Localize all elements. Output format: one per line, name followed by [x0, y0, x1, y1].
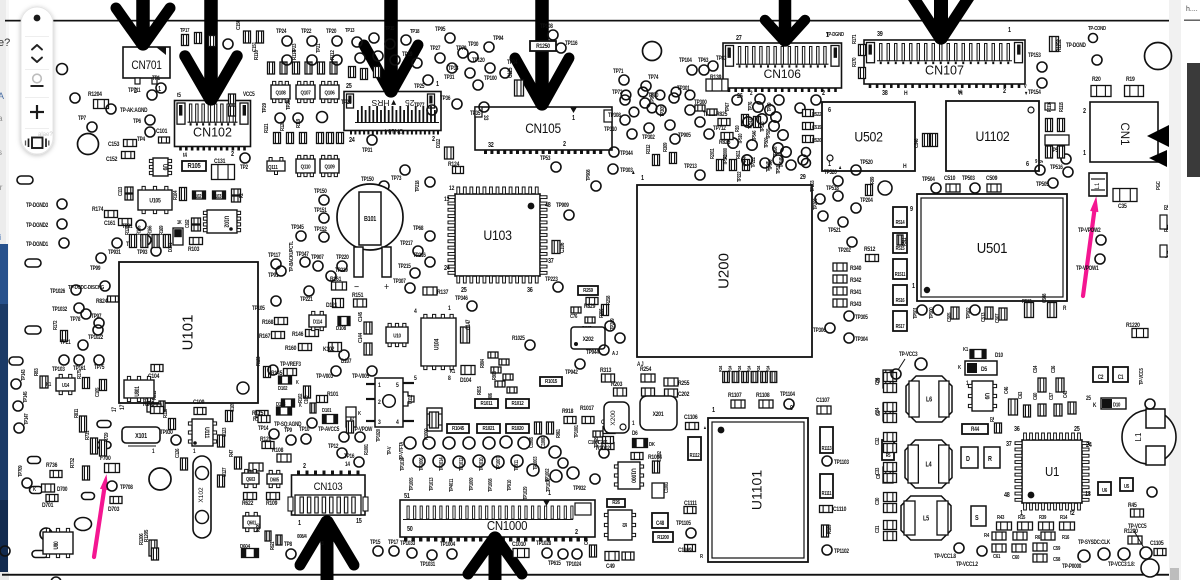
svg-text:C145: C145 — [358, 312, 365, 322]
svg-text:TP71: TP71 — [613, 69, 623, 76]
svg-text:H: H — [903, 164, 906, 171]
svg-text:R172: R172 — [53, 320, 60, 330]
svg-text:R815: R815 — [477, 386, 483, 395]
svg-text:K: K — [1093, 403, 1096, 410]
svg-text:TP307: TP307 — [393, 279, 406, 286]
svg-text:TP1028: TP1028 — [536, 541, 551, 548]
svg-text:TP4011: TP4011 — [449, 478, 456, 492]
svg-text:TP598: TP598 — [773, 146, 779, 157]
svg-text:TP306: TP306 — [813, 328, 826, 335]
svg-text:C36: C36 — [875, 377, 882, 385]
svg-text:TP-DGND: TP-DGND — [826, 32, 844, 39]
svg-text:TP63: TP63 — [698, 58, 708, 65]
svg-text:TP310: TP310 — [604, 127, 617, 134]
svg-text:R99: R99 — [870, 176, 877, 184]
svg-text:TP31: TP31 — [362, 148, 372, 155]
svg-text:TP223: TP223 — [545, 277, 558, 284]
svg-text:U9: U9 — [161, 164, 169, 171]
svg-text:U801: U801 — [135, 386, 142, 396]
svg-text:R254: R254 — [640, 367, 652, 374]
svg-text:TP145: TP145 — [23, 391, 30, 403]
svg-text:TP615: TP615 — [548, 561, 561, 568]
svg-text:R161: R161 — [330, 277, 342, 284]
svg-text:TP100: TP100 — [484, 76, 497, 83]
svg-text:D101: D101 — [322, 408, 332, 415]
svg-text:U80: U80 — [54, 541, 61, 549]
svg-text:C1110: C1110 — [833, 507, 846, 514]
svg-text:H: H — [904, 91, 907, 98]
svg-text:C1003: C1003 — [664, 482, 670, 493]
svg-text:U501: U501 — [977, 239, 1008, 256]
svg-text:C1111: C1111 — [684, 501, 698, 508]
svg-text:R1020: R1020 — [511, 426, 523, 433]
svg-text:1: 1 — [193, 449, 196, 456]
svg-text:U101: U101 — [179, 315, 196, 351]
svg-text:TP905: TP905 — [678, 133, 691, 140]
svg-text:R124: R124 — [448, 162, 460, 169]
svg-text:TP67: TP67 — [725, 102, 732, 112]
svg-text:R10: R10 — [735, 125, 741, 132]
svg-text:CN1000: CN1000 — [487, 518, 528, 533]
svg-text:C106: C106 — [560, 243, 567, 253]
svg-text:R20: R20 — [1092, 77, 1101, 84]
svg-text:C61: C61 — [993, 554, 1001, 561]
svg-text:TP302: TP302 — [642, 135, 655, 142]
svg-text:C35: C35 — [1118, 204, 1127, 211]
svg-text:TP103: TP103 — [52, 367, 65, 374]
svg-text:TP907: TP907 — [311, 255, 324, 262]
svg-text:TP153: TP153 — [1028, 53, 1041, 60]
svg-text:R24: R24 — [765, 365, 771, 372]
svg-text:D101: D101 — [168, 242, 175, 252]
svg-text:TP26: TP26 — [341, 100, 351, 107]
svg-text:1: 1 — [966, 381, 969, 388]
svg-text:R174: R174 — [92, 207, 104, 214]
svg-text:TP-VCC1.2: TP-VCC1.2 — [956, 562, 978, 569]
svg-text:R: R — [1063, 306, 1066, 313]
svg-text:t2: t2 — [1070, 509, 1075, 517]
svg-text:TP1022: TP1022 — [88, 335, 103, 342]
svg-text:TP304: TP304 — [855, 337, 868, 344]
svg-text:R1511: R1511 — [895, 272, 906, 278]
svg-text:R516: R516 — [896, 298, 905, 304]
svg-text:R620: R620 — [256, 523, 262, 532]
svg-text:TP1001: TP1001 — [574, 425, 580, 438]
svg-text:14: 14 — [345, 462, 350, 469]
svg-text:36: 36 — [527, 286, 533, 294]
svg-text:TP6: TP6 — [133, 119, 141, 126]
svg-text:TP-SQ:AGND: TP-SQ:AGND — [274, 422, 302, 429]
svg-text:R123: R123 — [256, 356, 263, 366]
svg-text:TP1032: TP1032 — [52, 307, 67, 314]
svg-text:TP501: TP501 — [913, 307, 920, 319]
svg-text:32: 32 — [488, 141, 494, 149]
svg-text:TP68: TP68 — [413, 226, 423, 233]
svg-text:27: 27 — [736, 34, 742, 42]
svg-text:TP346: TP346 — [455, 296, 468, 303]
svg-text:TP2: TP2 — [240, 165, 248, 172]
svg-text:R2: R2 — [1164, 205, 1171, 210]
svg-text:R2: R2 — [990, 417, 997, 422]
svg-text:C150: C150 — [236, 20, 243, 30]
svg-text:R1220: R1220 — [1126, 323, 1140, 330]
svg-text:TP217: TP217 — [400, 241, 413, 248]
svg-text:36: 36 — [1014, 425, 1020, 433]
svg-text:TP520: TP520 — [824, 170, 837, 177]
svg-text:CN106: CN106 — [764, 67, 802, 81]
svg-text:TP-VTFTA: TP-VTFTA — [399, 441, 406, 460]
svg-text:TP221: TP221 — [300, 297, 313, 304]
svg-text:17: 17 — [112, 407, 119, 412]
svg-text:R824: R824 — [96, 299, 108, 306]
svg-text:L1: L1 — [1134, 432, 1143, 441]
svg-text:R1250: R1250 — [536, 44, 550, 51]
svg-text:TP15: TP15 — [385, 26, 395, 33]
svg-text:TP213: TP213 — [684, 164, 697, 171]
svg-text:TP24: TP24 — [276, 29, 286, 36]
svg-text:C144: C144 — [358, 333, 365, 343]
svg-text:TP500: TP500 — [929, 307, 936, 319]
svg-text:D604: D604 — [240, 544, 250, 551]
svg-text:25: 25 — [346, 82, 352, 90]
svg-text:TP12: TP12 — [328, 444, 338, 451]
svg-text:R1002: R1002 — [596, 446, 610, 453]
svg-text:TP22: TP22 — [301, 29, 311, 36]
svg-text:R2: R2 — [239, 193, 245, 198]
svg-text:TP16: TP16 — [344, 454, 354, 461]
svg-text:24: 24 — [1086, 441, 1092, 449]
svg-text:U9: U9 — [983, 393, 991, 400]
svg-text:R167: R167 — [259, 334, 270, 341]
svg-text:R1107: R1107 — [728, 393, 741, 400]
svg-text:17: 17 — [120, 405, 127, 410]
svg-text:TP7: TP7 — [78, 116, 86, 123]
svg-text:TP596: TP596 — [768, 159, 774, 170]
svg-text:TP99: TP99 — [90, 266, 100, 273]
svg-text:TP206: TP206 — [813, 198, 820, 210]
svg-text:U6: U6 — [1102, 488, 1107, 495]
svg-text:TP512: TP512 — [748, 118, 754, 129]
svg-text:TP104: TP104 — [679, 58, 692, 65]
svg-text:C34: C34 — [875, 407, 882, 415]
svg-text:TP220: TP220 — [336, 255, 349, 262]
svg-text:PGC: PGC — [1156, 181, 1163, 190]
svg-text:R24: R24 — [727, 365, 733, 372]
svg-text:R45: R45 — [1128, 503, 1137, 510]
svg-text:R1204: R1204 — [88, 92, 103, 99]
svg-text:TP-V: TP-V — [387, 446, 393, 455]
svg-text:C151: C151 — [252, 42, 259, 52]
svg-text:TP15: TP15 — [370, 540, 380, 547]
svg-text:TP222: TP222 — [737, 171, 743, 182]
svg-text:TP-VPOW2: TP-VPOW2 — [1078, 228, 1101, 235]
svg-text:D102: D102 — [278, 386, 288, 393]
svg-text:C31: C31 — [875, 525, 882, 533]
svg-text:C202: C202 — [678, 392, 689, 399]
svg-text:TP21: TP21 — [316, 43, 323, 53]
svg-text:TP150: TP150 — [361, 177, 374, 184]
svg-text:D701: D701 — [42, 503, 54, 510]
svg-text:TP27: TP27 — [430, 46, 440, 53]
svg-text:U105: U105 — [149, 198, 161, 205]
svg-text:TP215: TP215 — [398, 264, 411, 271]
svg-text:U1101: U1101 — [749, 470, 765, 510]
svg-text:C1010: C1010 — [512, 542, 526, 549]
svg-text:TP-AK:AGND: TP-AK:AGND — [120, 108, 148, 115]
svg-text:1: 1 — [632, 421, 635, 428]
svg-text:R139: R139 — [710, 75, 722, 82]
svg-text:C510: C510 — [944, 176, 955, 183]
svg-text:R517: R517 — [896, 324, 905, 330]
svg-text:33: 33 — [482, 115, 489, 121]
svg-text:U111: U111 — [203, 427, 211, 439]
svg-text:2: 2 — [378, 400, 381, 407]
svg-text:TP1026: TP1026 — [546, 478, 553, 492]
svg-text:C1006: C1006 — [541, 437, 547, 448]
svg-text:TP35: TP35 — [470, 111, 480, 118]
svg-text:R83: R83 — [34, 368, 41, 376]
svg-text:R1015: R1015 — [545, 379, 557, 386]
svg-text:TP516: TP516 — [1050, 165, 1063, 172]
svg-text:U10: U10 — [393, 333, 401, 340]
svg-text:R312: R312 — [646, 144, 653, 154]
svg-text:R340: R340 — [850, 266, 861, 273]
svg-text:R732: R732 — [70, 458, 77, 468]
svg-text:Q603: Q603 — [246, 477, 256, 483]
svg-text:U1: U1 — [1045, 464, 1060, 479]
svg-text:D700: D700 — [57, 487, 67, 494]
svg-text:R343: R343 — [850, 302, 862, 309]
svg-text:R160: R160 — [285, 346, 296, 353]
svg-text:TP944: TP944 — [586, 350, 599, 357]
svg-text:D703: D703 — [108, 507, 120, 514]
svg-text:TP1020: TP1020 — [376, 429, 382, 442]
svg-text:C109: C109 — [230, 402, 237, 412]
svg-text:D103: D103 — [276, 402, 286, 409]
svg-text:R309: R309 — [663, 142, 670, 152]
svg-text:D605: D605 — [270, 477, 279, 483]
svg-text:R24: R24 — [756, 365, 762, 372]
svg-text:R513: R513 — [1022, 299, 1032, 306]
svg-text:D6: D6 — [632, 431, 638, 438]
svg-text:TP-COND: TP-COND — [1088, 26, 1106, 33]
svg-text:13: 13 — [1085, 490, 1091, 498]
svg-text:TP-V003: TP-V003 — [316, 374, 333, 381]
svg-text:TP1004: TP1004 — [440, 542, 455, 549]
svg-text:R169: R169 — [158, 225, 165, 235]
svg-text:TP595: TP595 — [766, 128, 772, 139]
svg-text:Q111: Q111 — [268, 165, 278, 172]
svg-text:TP-VCC1.8: TP-VCC1.8 — [934, 554, 956, 561]
svg-text:TP78: TP78 — [70, 317, 80, 324]
svg-text:TP218: TP218 — [415, 180, 422, 192]
svg-text:C49: C49 — [606, 564, 615, 571]
svg-text:C509: C509 — [986, 176, 998, 183]
svg-text:TP216: TP216 — [413, 253, 426, 260]
svg-text:D107: D107 — [341, 359, 351, 366]
svg-text:25: 25 — [1074, 425, 1080, 433]
svg-text:TP1026: TP1026 — [50, 289, 65, 296]
svg-text:1: 1 — [152, 449, 155, 456]
svg-text:R961: R961 — [556, 429, 562, 438]
svg-text:R109: R109 — [827, 524, 834, 534]
svg-text:R1012: R1012 — [511, 401, 523, 408]
svg-text:X102: X102 — [198, 487, 205, 503]
svg-text:R101: R101 — [327, 392, 339, 399]
svg-text:R44: R44 — [971, 427, 979, 434]
svg-text:R255: R255 — [678, 381, 690, 388]
svg-text:C109: C109 — [193, 400, 205, 407]
svg-text:R341: R341 — [850, 290, 862, 297]
svg-text:R175: R175 — [77, 369, 84, 379]
svg-text:TP510: TP510 — [738, 133, 744, 144]
svg-text:TP523: TP523 — [760, 121, 766, 132]
svg-text:C54: C54 — [1033, 365, 1040, 373]
svg-text:R47: R47 — [229, 449, 236, 457]
svg-text:D108: D108 — [336, 326, 346, 333]
svg-text:C546: C546 — [914, 138, 921, 148]
svg-text:R512: R512 — [864, 247, 875, 254]
svg-text:TP546: TP546 — [752, 130, 758, 141]
svg-text:R15: R15 — [1018, 515, 1026, 522]
svg-text:K102: K102 — [323, 347, 334, 354]
svg-text:TP-VCC3:1.8:: TP-VCC3:1.8: — [1108, 562, 1135, 569]
svg-text:D10: D10 — [1113, 402, 1121, 409]
svg-text:TP75: TP75 — [94, 365, 104, 372]
svg-text:C1107: C1107 — [816, 398, 829, 405]
svg-text:B101: B101 — [364, 215, 377, 223]
svg-text:TP-DGND3: TP-DGND3 — [26, 203, 48, 210]
svg-text:TP23: TP23 — [292, 43, 299, 53]
svg-text:D121: D121 — [326, 303, 338, 310]
svg-text:R203: R203 — [611, 382, 623, 389]
svg-text:C126: C126 — [175, 448, 182, 458]
svg-text:U1102: U1102 — [975, 128, 1009, 144]
svg-text:TP9: TP9 — [284, 428, 292, 435]
svg-text:TP204: TP204 — [860, 198, 873, 205]
svg-text:U5: U5 — [1124, 484, 1129, 491]
svg-text:TP1024: TP1024 — [566, 562, 581, 569]
svg-text:R1115: R1115 — [1059, 101, 1065, 112]
svg-text:R1045: R1045 — [452, 426, 464, 433]
svg-text:TP345: TP345 — [291, 225, 304, 232]
svg-text:C30: C30 — [875, 497, 882, 505]
svg-text:R1116: R1116 — [1047, 101, 1053, 112]
svg-text:TP305: TP305 — [855, 315, 868, 322]
svg-text:R: R — [988, 455, 992, 463]
svg-text:A: A — [0, 91, 4, 101]
svg-text:K1: K1 — [46, 382, 51, 389]
svg-text:R1001: R1001 — [364, 444, 370, 455]
svg-text:TP520: TP520 — [860, 160, 873, 167]
svg-text:R24: R24 — [718, 365, 724, 372]
svg-text:t3: t3 — [320, 541, 324, 548]
svg-text:R24: R24 — [746, 365, 752, 372]
svg-text:TP33: TP33 — [448, 66, 458, 73]
svg-text:TP93: TP93 — [137, 250, 147, 257]
svg-text:C46: C46 — [1004, 386, 1011, 394]
svg-text:Q107: Q107 — [300, 90, 310, 97]
svg-text:TP-VCC5: TP-VCC5 — [1128, 524, 1147, 531]
svg-text:TP308: TP308 — [608, 113, 621, 120]
svg-text:R109: R109 — [266, 501, 278, 508]
svg-text:50: 50 — [407, 525, 413, 533]
svg-text:TP-V005: TP-V005 — [352, 374, 369, 381]
svg-text:TP911: TP911 — [514, 460, 521, 471]
svg-text:R313: R313 — [600, 368, 612, 375]
svg-text:Q110: Q110 — [301, 164, 311, 171]
svg-text:TP4: TP4 — [137, 137, 145, 144]
svg-text:TP150: TP150 — [314, 189, 327, 196]
svg-text:R256: R256 — [599, 308, 606, 318]
svg-text:DK: DK — [649, 442, 655, 449]
svg-text:TP1: TP1 — [152, 76, 160, 83]
svg-text:29: 29 — [800, 173, 806, 181]
svg-text:C161: C161 — [104, 221, 116, 228]
svg-text:X201: X201 — [653, 412, 665, 419]
svg-text:R168: R168 — [262, 320, 274, 327]
svg-text:K1: K1 — [963, 347, 968, 354]
svg-text:38: 38 — [882, 89, 888, 97]
svg-text:L4: L4 — [926, 461, 933, 469]
svg-text:C206: C206 — [598, 440, 608, 447]
svg-text:C1109: C1109 — [678, 548, 692, 555]
svg-text:TP709: TP709 — [18, 465, 25, 477]
svg-text:U103: U103 — [483, 227, 511, 243]
svg-text:TP17: TP17 — [388, 540, 398, 547]
svg-text:TP-DGND2: TP-DGND2 — [26, 223, 48, 230]
svg-text:TP-VCC3: TP-VCC3 — [899, 352, 918, 359]
svg-text:C2: C2 — [1098, 375, 1104, 382]
svg-text:Q106: Q106 — [324, 90, 334, 97]
svg-text:R1206: R1206 — [139, 533, 146, 545]
svg-text:t4: t4 — [183, 153, 187, 160]
svg-text:C1105: C1105 — [1150, 541, 1164, 548]
svg-text:TP711: TP711 — [128, 88, 141, 95]
svg-text:TP143: TP143 — [21, 369, 28, 381]
svg-text:39: 39 — [877, 30, 883, 38]
svg-text:TP202: TP202 — [838, 248, 851, 255]
svg-text:C147: C147 — [466, 320, 473, 330]
svg-text:VCC5: VCC5 — [243, 92, 255, 99]
svg-text:R736: R736 — [46, 463, 58, 470]
svg-text:R26: R26 — [612, 500, 620, 507]
svg-text:37: 37 — [1006, 440, 1012, 448]
svg-text:TP77: TP77 — [414, 103, 424, 110]
svg-text:D: D — [966, 455, 970, 463]
svg-text:TP503: TP503 — [962, 176, 975, 183]
svg-text:U102: U102 — [222, 216, 230, 228]
svg-text:TP152: TP152 — [314, 227, 327, 234]
svg-text:C515: C515 — [812, 125, 822, 132]
svg-text:R906: R906 — [492, 371, 498, 380]
svg-text:R103: R103 — [188, 247, 200, 254]
svg-text:R16: R16 — [1062, 535, 1070, 542]
svg-text:R825: R825 — [716, 112, 728, 119]
svg-text:C507: C507 — [995, 313, 1002, 323]
svg-text:C1002: C1002 — [657, 451, 663, 462]
svg-text:R125: R125 — [252, 411, 264, 418]
svg-text:C127: C127 — [222, 467, 229, 477]
svg-text:TP20: TP20 — [326, 29, 336, 36]
svg-text:TP19: TP19 — [402, 52, 412, 59]
svg-text:R151: R151 — [352, 293, 364, 300]
svg-text:U14: U14 — [62, 383, 70, 390]
svg-text:TP83: TP83 — [716, 56, 726, 63]
svg-text:C103: C103 — [304, 395, 310, 404]
svg-text:A J: A J — [612, 351, 618, 358]
svg-text:C101: C101 — [156, 129, 168, 136]
